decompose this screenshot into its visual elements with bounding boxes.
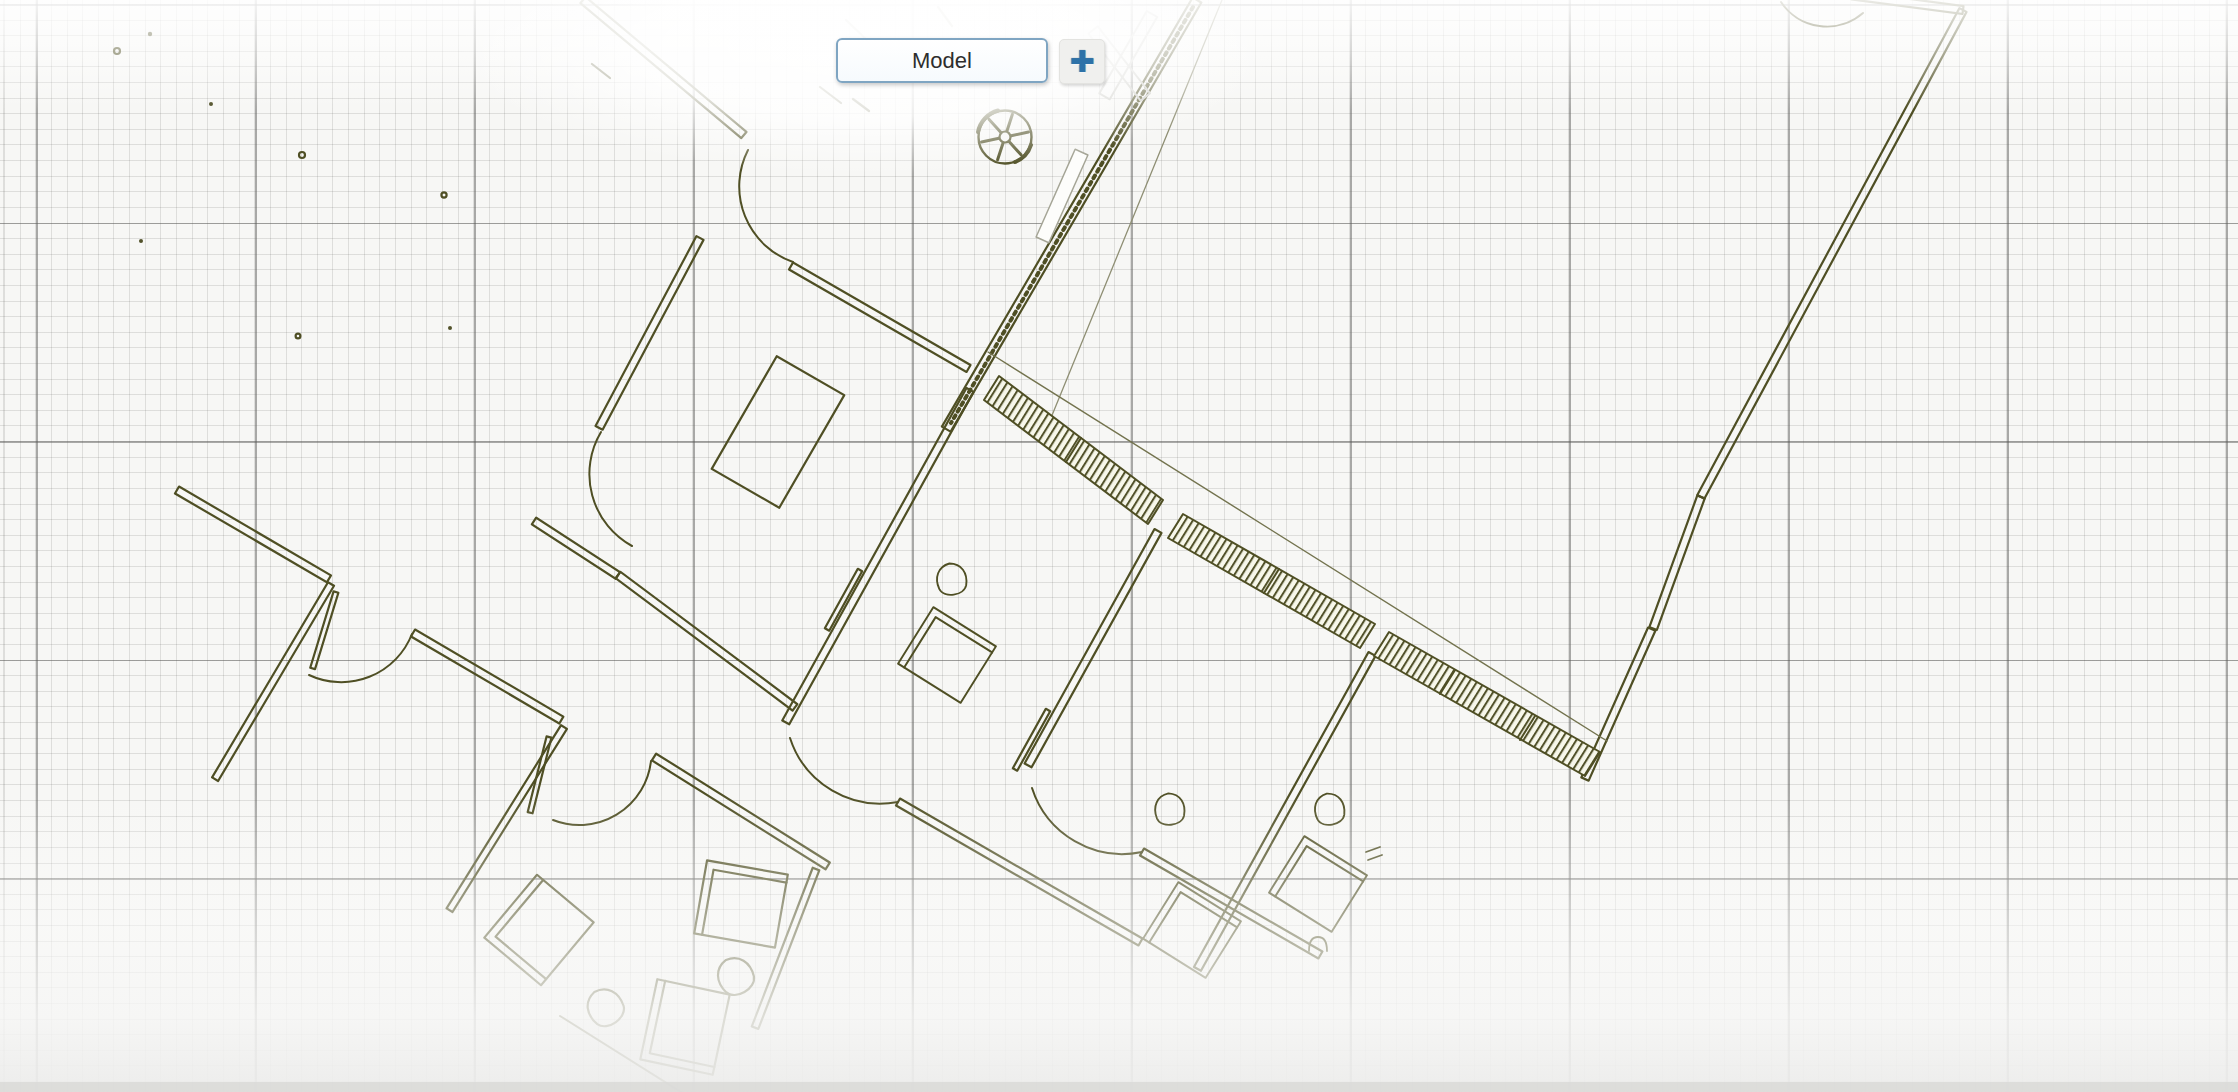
meeting-table[interactable] bbox=[712, 356, 845, 508]
model-tab[interactable]: Model bbox=[836, 38, 1048, 83]
model-tab-label: Model bbox=[912, 48, 972, 74]
drawing-canvas[interactable] bbox=[0, 0, 2238, 1092]
chairs[interactable] bbox=[580, 561, 1346, 1032]
desks[interactable] bbox=[484, 607, 1367, 1075]
hatched-wall-bands[interactable] bbox=[984, 352, 1607, 776]
ceiling-fan-icon[interactable] bbox=[978, 111, 1032, 164]
door-arcs bbox=[309, 2, 1863, 854]
plus-icon: ✚ bbox=[1069, 47, 1094, 77]
stray-specks bbox=[114, 32, 452, 339]
cad-viewport: Model ✚ bbox=[0, 0, 2238, 1092]
add-layout-button[interactable]: ✚ bbox=[1059, 39, 1105, 84]
